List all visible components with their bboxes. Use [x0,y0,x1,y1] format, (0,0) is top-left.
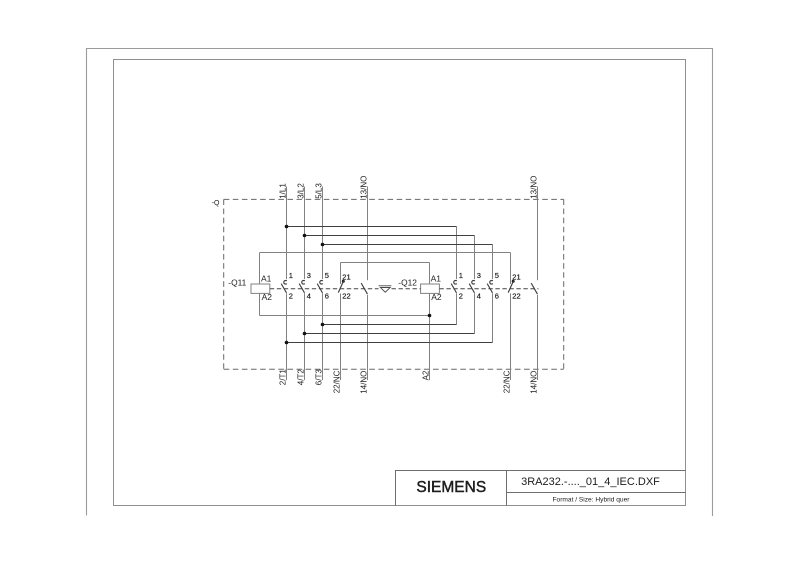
svg-text:22/NC: 22/NC [502,370,511,393]
svg-text:22: 22 [342,292,350,301]
svg-text:4: 4 [307,292,311,301]
svg-text:A1: A1 [261,274,272,284]
svg-text:5/L3: 5/L3 [314,183,323,199]
svg-text:4/T2: 4/T2 [296,369,305,386]
svg-text:6: 6 [495,292,499,301]
svg-text:22: 22 [512,292,520,301]
svg-text:21: 21 [342,272,350,281]
svg-text:-Q12: -Q12 [398,278,417,288]
svg-text:5: 5 [495,271,499,280]
svg-text:2: 2 [289,292,293,301]
svg-text:21: 21 [512,272,520,281]
svg-text:-Q: -Q [212,200,220,207]
svg-text:A2: A2 [421,370,430,380]
svg-text:2: 2 [459,292,463,301]
svg-text:22/NC: 22/NC [332,370,341,393]
svg-text:A2: A2 [431,292,442,302]
svg-text:5: 5 [325,271,329,280]
svg-text:3: 3 [307,271,311,280]
svg-text:2/T1: 2/T1 [278,369,287,386]
svg-text:3RA232.-...._01_4_IEC.DXF: 3RA232.-...._01_4_IEC.DXF [521,476,660,488]
svg-text:1: 1 [289,271,293,280]
svg-text:6: 6 [325,292,329,301]
svg-text:-Q11: -Q11 [228,278,246,288]
svg-text:1: 1 [459,271,463,280]
svg-text:3/L2: 3/L2 [296,183,305,199]
svg-text:A2: A2 [262,292,273,302]
svg-text:6/T3: 6/T3 [314,369,323,386]
svg-text:SIEMENS: SIEMENS [416,479,486,496]
svg-text:1/L1: 1/L1 [278,183,287,199]
svg-text:13/NO: 13/NO [529,176,538,199]
svg-text:13/NO: 13/NO [359,176,368,199]
svg-text:4: 4 [477,292,481,301]
svg-text:14/NO: 14/NO [529,371,538,394]
svg-text:A1: A1 [431,274,442,284]
svg-text:14/NO: 14/NO [359,371,368,394]
svg-text:Format / Size: Hybrid quer: Format / Size: Hybrid quer [553,496,631,503]
svg-text:3: 3 [477,271,481,280]
